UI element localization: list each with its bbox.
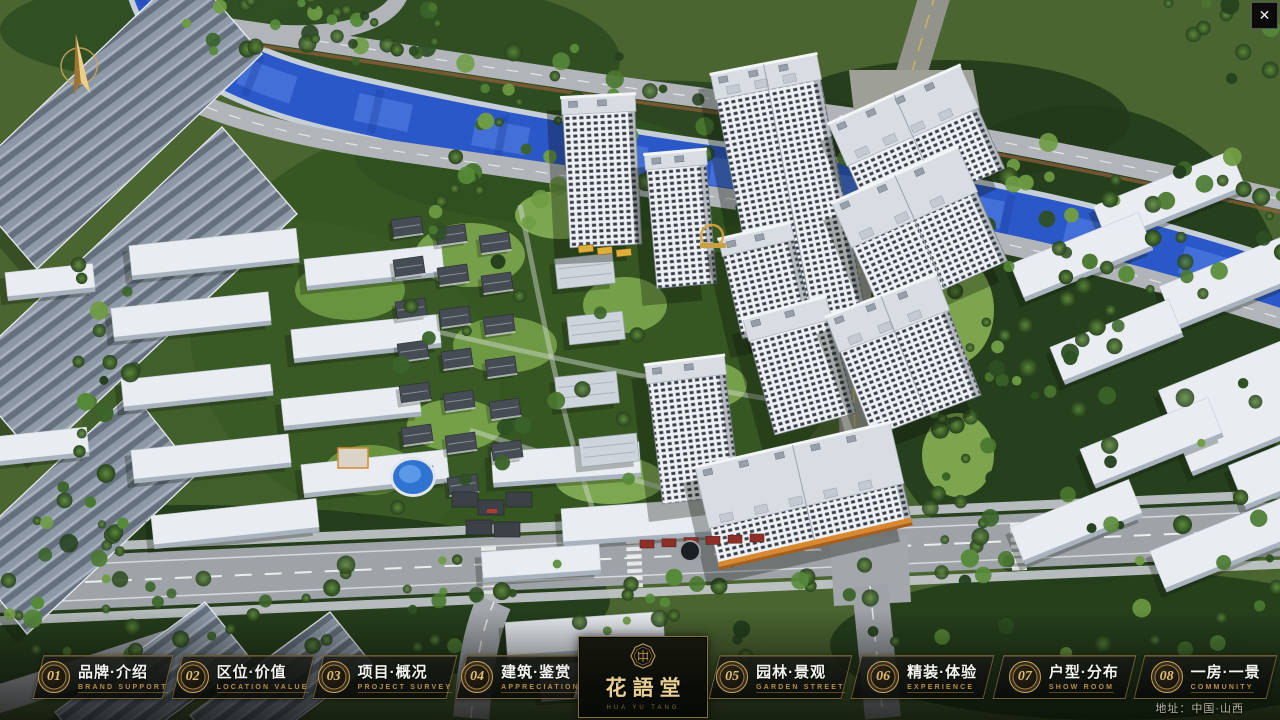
nav-label-zh: 品牌·介绍 xyxy=(78,661,148,682)
compass-icon xyxy=(52,30,106,100)
presentation-screen: ✕ 01 品牌·介绍 BRAND SUPPORT 02 区位·价值 LOCATI… xyxy=(0,0,1280,720)
nav-number-badge: 07 xyxy=(1009,661,1041,693)
bottom-nav-left: 01 品牌·介绍 BRAND SUPPORT 02 区位·价值 LOCATION… xyxy=(38,655,572,699)
nav-label-zh: 一房·一景 xyxy=(1191,661,1261,682)
logo-title: 花語堂 xyxy=(600,672,687,702)
nav-item-garden-landscape[interactable]: 05 园林·景观 GARDEN STREET xyxy=(714,655,847,699)
nav-label-zh: 户型·分布 xyxy=(1049,661,1119,682)
nav-item-location-value[interactable]: 02 区位·价值 LOCATION VALUE xyxy=(177,655,309,699)
nav-label-en: APPRECIATION xyxy=(501,684,580,693)
nav-label-en: COMMUNITY xyxy=(1191,684,1254,693)
logo-tagline: HUA YU TANG xyxy=(606,705,679,711)
nav-item-project-survey[interactable]: 03 项目·概况 PROJECT SURVEY xyxy=(318,655,452,699)
close-button[interactable]: ✕ xyxy=(1251,2,1278,29)
nav-label-en: PROJECT SURVEY xyxy=(358,684,452,693)
nav-label-en: LOCATION VALUE xyxy=(217,684,309,693)
nav-label-en: SHOW ROOM xyxy=(1049,684,1114,693)
nav-number-badge: 05 xyxy=(716,661,748,693)
nav-label-en: GARDEN STREET xyxy=(756,684,845,693)
nav-item-room-view[interactable]: 08 一房·一景 COMMUNITY xyxy=(1139,655,1272,699)
nav-item-interior-experience[interactable]: 06 精装·体验 EXPERIENCE xyxy=(856,655,989,699)
nav-label-zh: 区位·价值 xyxy=(217,661,287,682)
nav-item-brand-intro[interactable]: 01 品牌·介绍 BRAND SUPPORT xyxy=(38,655,168,699)
nav-label-zh: 精装·体验 xyxy=(907,661,977,682)
nav-number-badge: 03 xyxy=(318,661,350,693)
nav-number-badge: 08 xyxy=(1151,661,1183,693)
bottom-nav-right: 05 园林·景观 GARDEN STREET 06 精装·体验 EXPERIEN… xyxy=(714,655,1272,699)
nav-label-zh: 园林·景观 xyxy=(756,661,826,682)
site-aerial-render xyxy=(0,0,1280,720)
project-address: 地址：中国·山西 xyxy=(1155,700,1244,716)
logo-panel[interactable]: 花語堂 HUA YU TANG xyxy=(578,636,708,718)
nav-label-en: EXPERIENCE xyxy=(907,684,974,693)
nav-label-zh: 项目·概况 xyxy=(358,661,428,682)
nav-number-badge: 04 xyxy=(461,661,493,693)
nav-number-badge: 06 xyxy=(867,661,899,693)
nav-label-en: BRAND SUPPORT xyxy=(78,684,168,693)
nav-label-zh: 建筑·鉴赏 xyxy=(501,661,571,682)
nav-item-unit-distribution[interactable]: 07 户型·分布 SHOW ROOM xyxy=(998,655,1131,699)
nav-number-badge: 01 xyxy=(38,661,70,693)
nav-number-badge: 02 xyxy=(177,661,209,693)
nav-item-architecture[interactable]: 04 建筑·鉴赏 APPRECIATION xyxy=(461,655,580,699)
seal-emblem-icon xyxy=(630,643,656,669)
